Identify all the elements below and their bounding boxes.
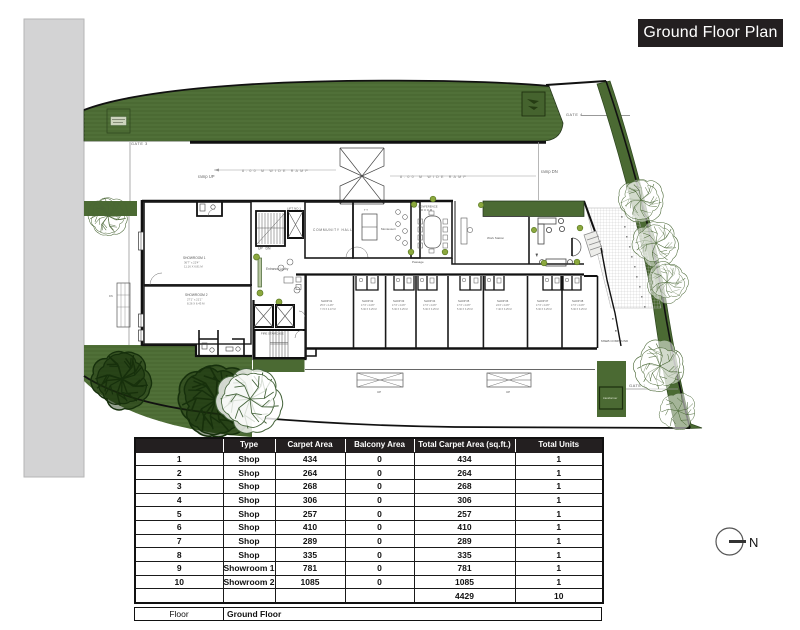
svg-text:8.00 M WIDE RAMP: 8.00 M WIDE RAMP [400,175,468,179]
svg-text:UP: UP [506,390,510,394]
svg-text:5.30 X 3.25 M: 5.30 X 3.25 M [361,308,377,311]
svg-text:SHOWROOM 1: SHOWROOM 1 [183,256,206,260]
svg-text:7.40 X 3.25 M: 7.40 X 3.25 M [496,308,512,311]
svg-text:MSEB COMPOUND: MSEB COMPOUND [601,339,629,343]
svg-text:COMMUNITY HALL: COMMUNITY HALL [313,228,353,232]
svg-text:SHOP 04: SHOP 04 [424,299,436,303]
svg-text:Passage: Passage [412,260,424,264]
svg-text:Entrance Lobby: Entrance Lobby [266,267,289,271]
svg-text:8.00 M WIDE RAMP: 8.00 M WIDE RAMP [242,169,310,173]
svg-text:SHOWROOM 2: SHOWROOM 2 [185,293,208,297]
svg-text:UP: UP [377,390,381,394]
svg-text:11.16 X 6.81 M: 11.16 X 6.81 M [184,265,203,269]
svg-text:transformer: transformer [603,396,617,400]
svg-text:5.30 X 3.25 M: 5.30 X 3.25 M [392,308,408,311]
svg-text:Montessori: Montessori [381,227,396,231]
svg-text:5.30 X 3.25 M: 5.30 X 3.25 M [571,308,587,311]
svg-text:UP DN: UP DN [258,247,271,251]
svg-text:R O O M: R O O M [421,208,433,212]
svg-text:17'4" x 10'8": 17'4" x 10'8" [423,304,437,307]
svg-text:25'4" x 14'8": 25'4" x 14'8" [320,304,334,307]
svg-text:17'4" x 10'8": 17'4" x 10'8" [361,304,375,307]
svg-text:17'4" x 10'8": 17'4" x 10'8" [571,304,585,307]
svg-text:DN: DN [109,294,113,298]
svg-text:5.30 X 3.25 M: 5.30 X 3.25 M [457,308,473,311]
svg-text:ramp UP: ramp UP [198,174,215,179]
svg-text:SHOP 03: SHOP 03 [393,299,405,303]
svg-text:SHOP 02: SHOP 02 [362,299,374,303]
svg-text:ramp DN: ramp DN [541,169,558,174]
svg-text:GATE 4: GATE 4 [566,113,583,117]
svg-text:N: N [749,535,758,550]
svg-text:24'4" x 10'8": 24'4" x 10'8" [496,304,510,307]
svg-text:SHOP 07: SHOP 07 [537,299,549,303]
svg-text:17'4" x 10'8": 17'4" x 10'8" [392,304,406,307]
svg-text:T: T [536,253,538,257]
svg-text:Work Station: Work Station [487,236,504,240]
svg-text:FIRE STAIRCASE: FIRE STAIRCASE [261,332,284,336]
svg-text:SHOP 08: SHOP 08 [572,299,584,303]
svg-text:LIFT NO 1: LIFT NO 1 [287,207,301,211]
svg-text:SHOP 05: SHOP 05 [458,299,470,303]
svg-text:5.30 X 3.25 M: 5.30 X 3.25 M [423,308,439,311]
svg-text:7.72 X 4.47 M: 7.72 X 4.47 M [320,308,336,311]
svg-text:5.30 X 3.25 M: 5.30 X 3.25 M [536,308,552,311]
svg-text:SHOP 01: SHOP 01 [321,299,333,303]
svg-text:GATE 3: GATE 3 [131,142,148,146]
svg-text:17'4" x 10'8": 17'4" x 10'8" [457,304,471,307]
svg-text:17'4" x 10'8": 17'4" x 10'8" [536,304,550,307]
svg-text:SHOP 06: SHOP 06 [497,299,509,303]
svg-text:T T: T T [364,208,368,212]
svg-text:8.26 X 6.43 M: 8.26 X 6.43 M [187,302,205,306]
